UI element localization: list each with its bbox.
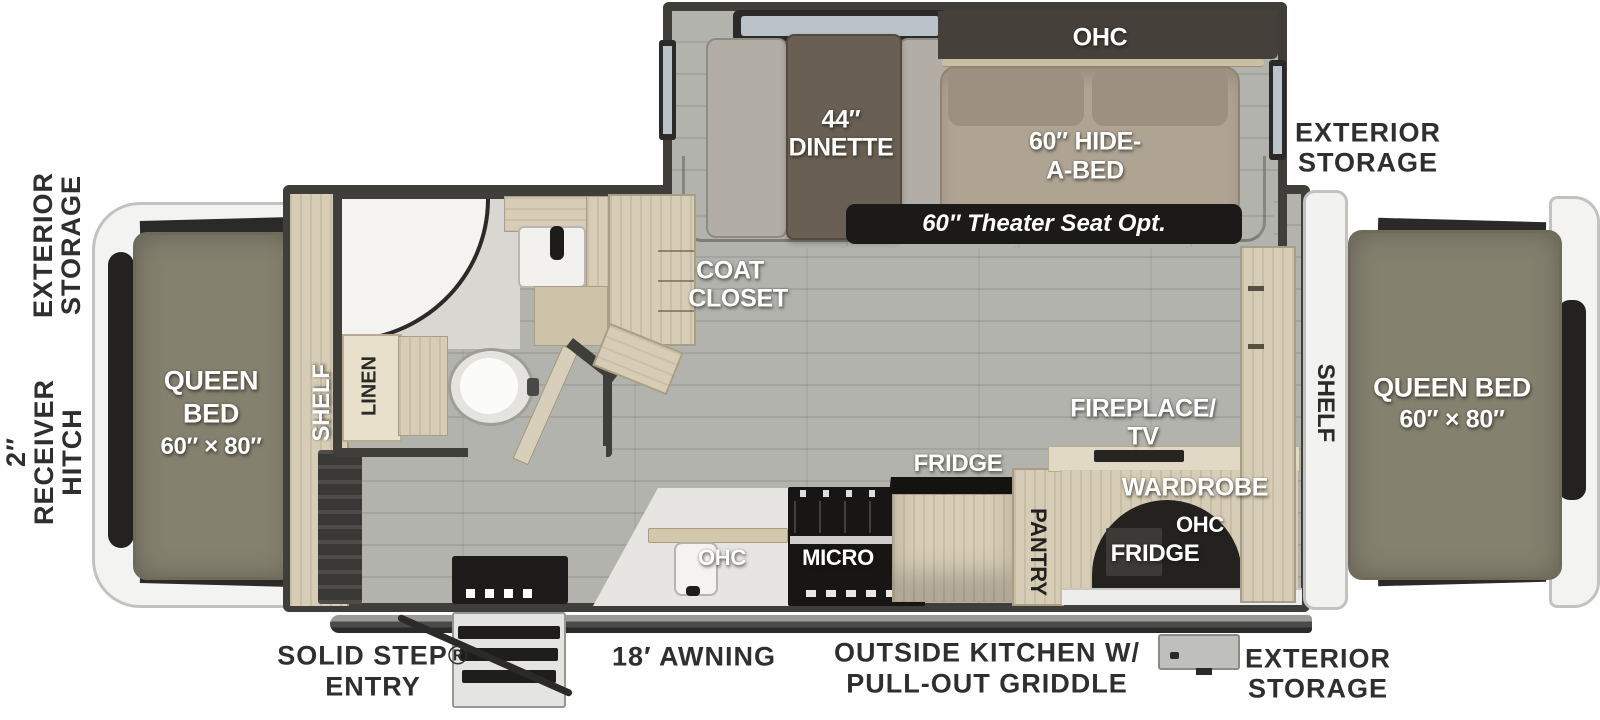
- dinette-label-line2: DINETTE: [789, 134, 894, 163]
- bath-vanity: [534, 286, 608, 346]
- outside-kitchen-label-line2: PULL-OUT GRIDDLE: [846, 669, 1127, 700]
- top-right-storage-line2: STORAGE: [1298, 148, 1438, 179]
- front-shelf-label: SHELF: [308, 364, 336, 441]
- coat-closet-label-line1: COAT: [696, 257, 764, 286]
- front-bed-label-line1: QUEEN: [164, 366, 259, 397]
- rear-ohc-label: OHC: [1176, 512, 1224, 538]
- dinette-label-line1: 44″: [822, 106, 861, 135]
- kitchen-ohc-label: OHC: [698, 545, 746, 571]
- bath-storage-cabinet: [398, 336, 448, 436]
- bottom-right-storage-line2: STORAGE: [1248, 674, 1388, 705]
- slideout-top-window-glass: [741, 16, 939, 36]
- storage-compartment-foot: [1196, 668, 1212, 675]
- fridge-top: [889, 477, 1015, 494]
- front-exterior-storage-line2: STORAGE: [57, 172, 85, 318]
- dinette-bench-left: [706, 38, 788, 238]
- rv-floorplan: QUEEN BED 60″ × 80″ 44″ DINETTE OHC 60″ …: [0, 0, 1600, 720]
- hide-a-bed-label-line1: 60″ HIDE-: [1029, 128, 1141, 157]
- receiver-hitch-line3: HITCH: [58, 379, 86, 525]
- toilet-seat: [460, 358, 518, 414]
- kitchen-fridge-label: FRIDGE: [914, 450, 1003, 478]
- front-bed-cap-shadow: [108, 252, 134, 548]
- sofa-back-cushion-left: [948, 70, 1084, 126]
- rear-bed-label-line1: QUEEN BED: [1373, 373, 1531, 404]
- kitchen-faucet: [686, 586, 700, 596]
- receiver-hitch-line1: 2″: [2, 379, 30, 525]
- entry-mat-treads: [466, 589, 536, 598]
- sofa-back-cushion-right: [1092, 70, 1228, 126]
- theater-seat-badge-label: 60″ Theater Seat Opt.: [922, 210, 1166, 238]
- slideout-left-window-glass: [663, 46, 672, 134]
- solid-step-label-line2: ENTRY: [325, 672, 421, 703]
- wardrobe-pull-1: [1248, 286, 1264, 291]
- ohc-living-label: OHC: [1073, 24, 1128, 53]
- hide-a-bed-label-line2: A-BED: [1046, 157, 1124, 186]
- linen-label: LINEN: [359, 356, 382, 416]
- toilet-hinge: [527, 378, 539, 396]
- slideout-right-window-glass: [1273, 66, 1282, 154]
- rear-shelf-label: SHELF: [1311, 364, 1339, 443]
- wardrobe-label: WARDROBE: [1122, 474, 1268, 503]
- coat-closet-label-line2: CLOSET: [688, 285, 788, 314]
- fireplace-label-line2: TV: [1127, 423, 1158, 452]
- receiver-hitch-label: 2″ RECEIVER HITCH: [2, 379, 86, 525]
- kitchen-ohc-rail: [648, 528, 788, 543]
- front-bed-size-label: 60″ × 80″: [160, 433, 261, 461]
- storage-compartment-latch: [1170, 652, 1179, 659]
- entry-step-tread-1: [458, 626, 560, 639]
- front-bed-label-line2: BED: [183, 399, 239, 430]
- front-bed-steps: [318, 450, 362, 604]
- wardrobe-pull-2: [1248, 344, 1264, 349]
- pantry-label: PANTRY: [1025, 508, 1051, 596]
- wardrobe-tall-cabinet: [1240, 246, 1296, 603]
- tv-slot: [1094, 450, 1184, 462]
- rear-bed-cap-shadow: [1558, 300, 1586, 500]
- front-exterior-storage-label: EXTERIOR STORAGE: [29, 172, 85, 318]
- solid-step-label-line1: SOLID STEP®: [277, 641, 468, 672]
- receiver-hitch-line2: RECEIVER: [30, 379, 58, 525]
- fireplace-label-line1: FIREPLACE/: [1070, 395, 1216, 424]
- micro-label: MICRO: [802, 545, 874, 571]
- awning-label: 18′ AWNING: [612, 642, 776, 673]
- outside-kitchen-label-line1: OUTSIDE KITCHEN W/: [834, 638, 1140, 669]
- bath-counter-side: [586, 196, 610, 288]
- bottom-right-storage-line1: EXTERIOR: [1245, 644, 1391, 675]
- front-exterior-storage-line1: EXTERIOR: [29, 172, 57, 318]
- rear-fridge-label: FRIDGE: [1111, 540, 1200, 568]
- fridge-body: [892, 494, 1014, 602]
- top-right-storage-line1: EXTERIOR: [1295, 118, 1441, 149]
- rear-bed-size-label: 60″ × 80″: [1399, 406, 1504, 435]
- bathroom-doorway-gap: [468, 446, 606, 459]
- bath-faucet: [550, 226, 564, 260]
